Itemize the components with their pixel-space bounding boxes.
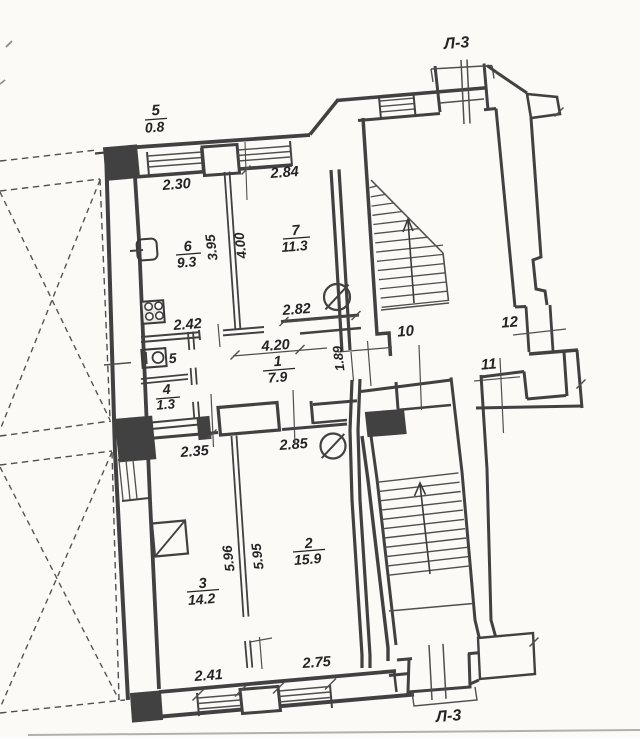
svg-text:4: 4	[161, 381, 171, 398]
svg-text:2.82: 2.82	[281, 301, 311, 319]
svg-text:Л-3: Л-3	[442, 34, 470, 53]
svg-text:1.3: 1.3	[156, 396, 176, 412]
svg-text:14.2: 14.2	[187, 590, 216, 608]
svg-text:11.3: 11.3	[281, 237, 309, 255]
svg-text:12: 12	[501, 313, 520, 331]
svg-text:9.3: 9.3	[176, 253, 197, 270]
svg-text:11: 11	[480, 355, 497, 373]
svg-text:2.35: 2.35	[179, 443, 210, 461]
svg-text:2.30: 2.30	[161, 176, 191, 194]
svg-text:2.85: 2.85	[278, 436, 309, 454]
svg-text:1.89: 1.89	[329, 344, 347, 372]
svg-text:5: 5	[168, 350, 177, 367]
svg-text:2.42: 2.42	[172, 316, 202, 334]
svg-text:2.84: 2.84	[269, 164, 299, 182]
svg-text:2.41: 2.41	[193, 667, 223, 685]
svg-text:2.75: 2.75	[301, 654, 332, 672]
svg-text:15.9: 15.9	[293, 550, 322, 568]
svg-text:Л-3: Л-3	[434, 707, 462, 726]
svg-text:7.9: 7.9	[267, 368, 288, 385]
svg-text:10: 10	[397, 322, 416, 340]
svg-text:0.8: 0.8	[144, 118, 165, 135]
